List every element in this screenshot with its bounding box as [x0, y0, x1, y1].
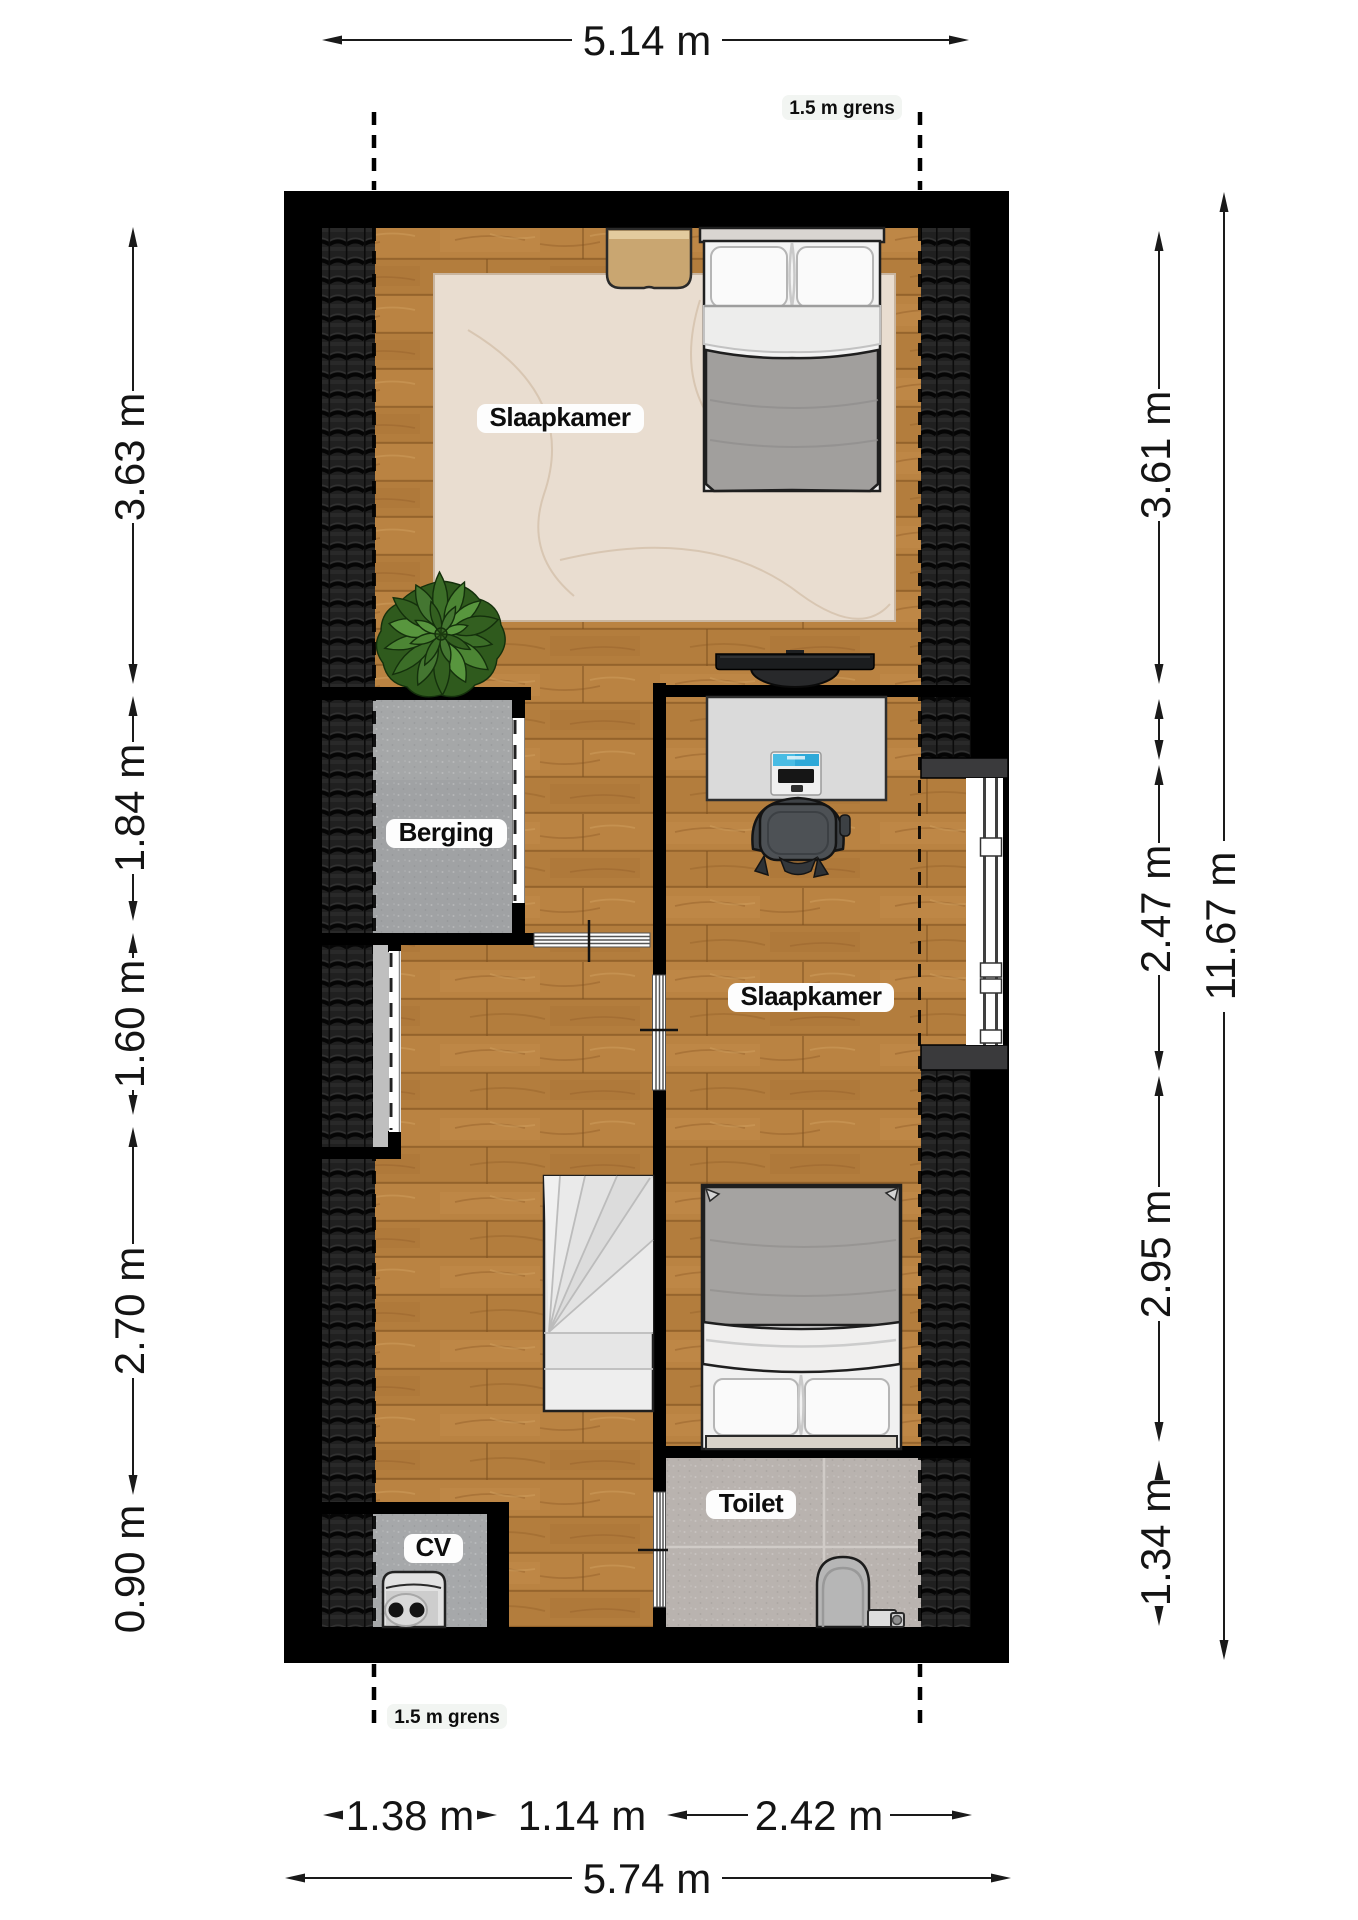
- svg-text:Slaapkamer: Slaapkamer: [741, 981, 882, 1011]
- svg-text:2.95 m: 2.95 m: [1132, 1190, 1179, 1318]
- svg-text:3.61 m: 3.61 m: [1132, 391, 1179, 519]
- svg-text:2.70 m: 2.70 m: [106, 1247, 153, 1375]
- svg-text:1.84 m: 1.84 m: [106, 744, 153, 872]
- svg-text:Slaapkamer: Slaapkamer: [490, 402, 631, 432]
- svg-text:1.60 m: 1.60 m: [106, 960, 153, 1088]
- svg-text:2.42 m: 2.42 m: [755, 1792, 883, 1839]
- svg-text:Toilet: Toilet: [719, 1488, 784, 1518]
- svg-text:1.5 m grens: 1.5 m grens: [394, 1707, 500, 1728]
- svg-text:3.63 m: 3.63 m: [106, 393, 153, 521]
- svg-text:0.90 m: 0.90 m: [106, 1505, 153, 1633]
- svg-text:11.67 m: 11.67 m: [1197, 852, 1244, 1001]
- svg-text:1.5 m grens: 1.5 m grens: [789, 98, 895, 119]
- svg-text:1.14 m: 1.14 m: [518, 1792, 646, 1839]
- svg-text:5.14 m: 5.14 m: [583, 17, 711, 64]
- svg-text:5.74 m: 5.74 m: [583, 1855, 711, 1902]
- svg-text:CV: CV: [415, 1532, 451, 1562]
- svg-text:Berging: Berging: [399, 817, 494, 847]
- svg-text:1.38 m: 1.38 m: [346, 1792, 474, 1839]
- svg-text:2.47 m: 2.47 m: [1132, 845, 1179, 973]
- svg-text:1.34 m: 1.34 m: [1132, 1478, 1179, 1606]
